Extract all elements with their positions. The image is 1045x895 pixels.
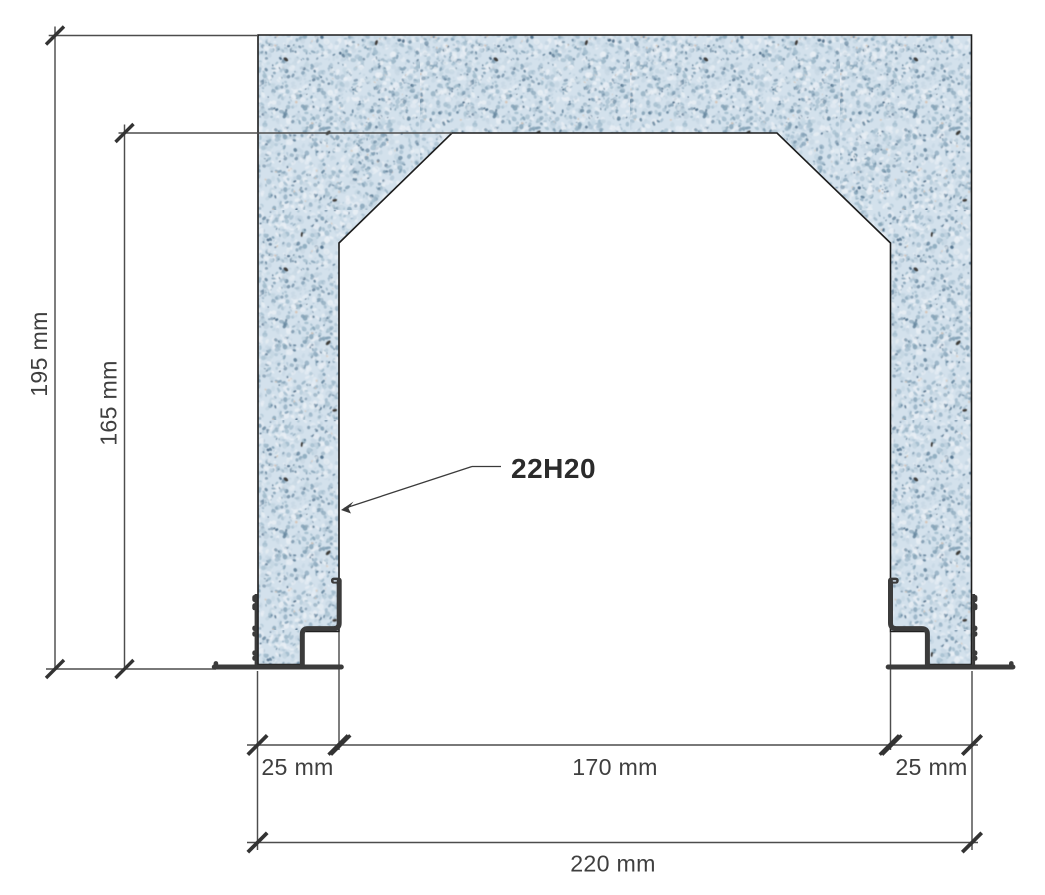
svg-text:22H20: 22H20 — [511, 453, 596, 484]
svg-text:195 mm: 195 mm — [26, 311, 52, 397]
svg-text:170 mm: 170 mm — [572, 754, 658, 780]
svg-text:25 mm: 25 mm — [895, 754, 967, 780]
svg-text:165 mm: 165 mm — [96, 360, 122, 446]
svg-text:25 mm: 25 mm — [261, 754, 333, 780]
svg-text:220 mm: 220 mm — [570, 851, 656, 877]
